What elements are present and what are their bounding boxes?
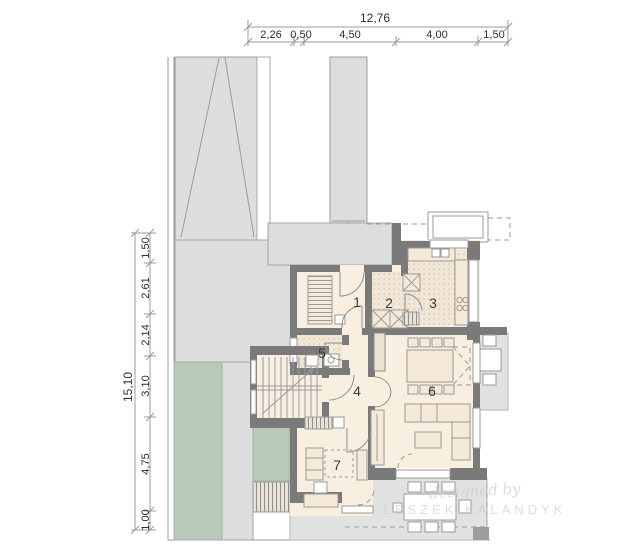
- terrace-pillar: [473, 527, 489, 540]
- dim-left-seg-0: 1,50: [140, 237, 152, 258]
- patio-chair: [483, 335, 496, 346]
- duct: [374, 333, 385, 371]
- dim-left-seg-5: 1,00: [140, 509, 152, 530]
- study-glass-wall: [342, 506, 373, 513]
- room-label-7: 7: [333, 457, 341, 473]
- room-label-5: 5: [318, 345, 326, 361]
- study-cabinet: [357, 450, 367, 480]
- stair-window-1: [251, 360, 256, 384]
- room-label-1: 1: [353, 294, 361, 310]
- watermark-name-line: LESZEK KALANDYK: [384, 502, 567, 517]
- watermark-script-line: designed by: [429, 480, 522, 503]
- room-label-3: 3: [429, 295, 437, 311]
- dim-left-seg-1: 2,61: [140, 277, 152, 298]
- dim-left-seg-4: 4,75: [140, 453, 152, 474]
- dim-left-seg-3: 3,10: [140, 375, 152, 396]
- dim-top-seg-4: 1,50: [483, 29, 504, 41]
- understair-box: [333, 417, 344, 428]
- patio-table: [480, 349, 501, 371]
- patio-chair: [483, 374, 496, 385]
- kitchen-side-window: [469, 260, 478, 322]
- stair-window-2: [251, 390, 256, 414]
- dim-top-seg-3: 4,00: [426, 29, 447, 41]
- left-dimension-chain: 15,10 1,50 2,61 2,14 3,10 4,75 1,00: [121, 229, 156, 534]
- study-sofa: [306, 448, 323, 480]
- dim-top-seg-0: 2,26: [260, 29, 281, 41]
- side-table: [314, 482, 327, 493]
- dim-left-total: 15,10: [121, 372, 135, 402]
- lawn-left: [174, 362, 222, 540]
- wardrobe: [308, 276, 332, 324]
- dining-table: [407, 350, 453, 382]
- driveway-side-strip: [257, 57, 270, 240]
- coffee-table: [415, 432, 441, 448]
- driveway: [175, 57, 257, 240]
- dim-top-total: 12,76: [360, 11, 390, 25]
- room-label-6: 6: [428, 383, 436, 399]
- lawn-by-house: [253, 424, 290, 481]
- terrace-door: [396, 470, 450, 478]
- living-window-1: [473, 343, 480, 383]
- floor-plan-drawing: 12,76 2,26 0,50 4,50 4,00 1,50 15,10 1,5…: [0, 0, 638, 556]
- entrance-porch: [268, 223, 392, 265]
- washbasin: [306, 355, 318, 366]
- kitchen-window: [430, 240, 468, 248]
- understair-storage: [305, 417, 332, 429]
- entrance-path: [330, 57, 367, 245]
- living-window-2: [473, 408, 480, 448]
- room-label-4: 4: [353, 383, 361, 399]
- sink: [441, 249, 449, 257]
- sink: [432, 249, 440, 257]
- top-dimension-chain: 12,76 2,26 0,50 4,50 4,00 1,50: [244, 11, 512, 46]
- dim-left-seg-2: 2,14: [140, 324, 152, 345]
- dim-top-seg-1: 0,50: [290, 29, 311, 41]
- dim-top-seg-2: 4,50: [339, 29, 360, 41]
- desk: [304, 494, 338, 507]
- paving-side-strip: [222, 362, 253, 540]
- floor-plan-canvas: 12,76 2,26 0,50 4,50 4,00 1,50 15,10 1,5…: [0, 0, 638, 556]
- kitchen-counter-right: [455, 260, 468, 325]
- room-label-2: 2: [385, 295, 393, 311]
